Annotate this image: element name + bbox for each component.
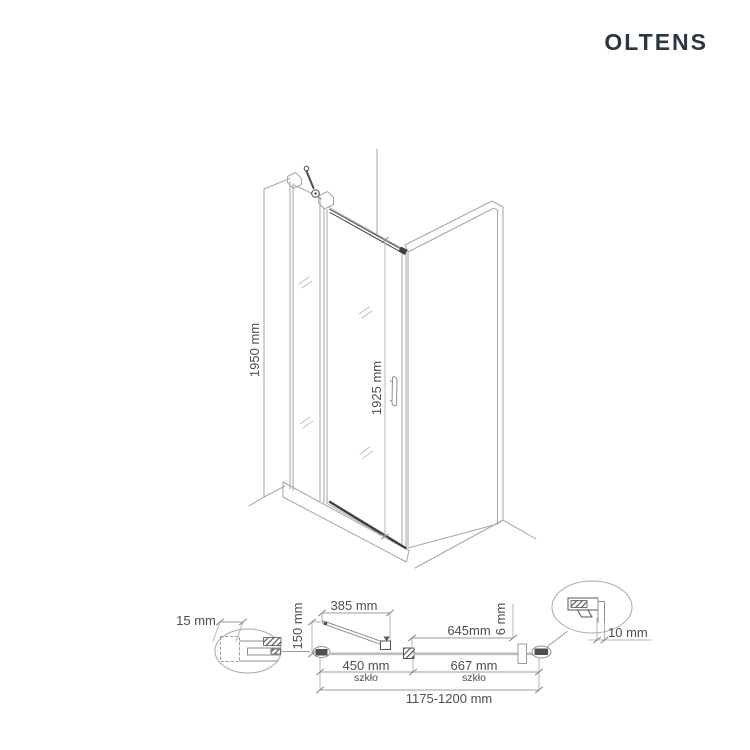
dim-door-open-depth-label: 150 mm: [290, 603, 305, 650]
door-handle: [390, 377, 397, 406]
wall-profile-detail-left: [215, 629, 281, 673]
center-hinge-block: [404, 648, 415, 659]
dim-total-width-range-label: 1175-1200 mm: [406, 691, 492, 706]
dim-total-height-label: 1950 mm: [247, 323, 262, 377]
dim-right-glass-width-label: 667 mm: [451, 658, 498, 673]
fixed-glass-panel: [288, 173, 321, 502]
floor-lines: [415, 520, 536, 568]
product-technical-page: OLTENS: [0, 0, 750, 750]
wall-profile-right: [532, 646, 551, 658]
technical-drawing: 1950 mm 1925 mm: [0, 0, 750, 750]
dim-left-glass-width-label: 450 mm: [343, 658, 390, 673]
dim-panel-width-label: 645mm: [447, 623, 490, 638]
left-glass-material-label: szkło: [354, 672, 378, 684]
door-top-cap: [319, 192, 334, 210]
dim-wall-offset-label: 15 mm: [176, 613, 216, 628]
plan-view-drawing: 15 mm 385 mm 150 mm 450 mm szkło 645mm 6…: [176, 581, 651, 706]
wall-bracket: [518, 644, 527, 664]
top-pivot-hardware: [304, 166, 321, 199]
open-door-swing: [322, 621, 391, 650]
glass-reflection-marks: [299, 277, 373, 458]
iso-view-drawing: 1950 mm 1925 mm: [247, 149, 536, 568]
ceiling-and-back-wall-lines: [249, 149, 377, 506]
right-glass-material-label: szkło: [462, 672, 486, 684]
wall-profile-left: [313, 647, 330, 658]
dim-glass-thickness-label: 6 mm: [493, 603, 508, 636]
shower-tray: [283, 482, 409, 562]
dim-glass-height-label: 1925 mm: [369, 361, 384, 415]
callout-connector-right: [548, 632, 568, 647]
support-bar: [330, 210, 408, 256]
dim-door-open-width-label: 385 mm: [331, 598, 378, 613]
door-panel: [299, 192, 406, 550]
dim-adjustment-range-label: 10 mm: [608, 625, 648, 640]
side-return-panel: [405, 201, 503, 548]
